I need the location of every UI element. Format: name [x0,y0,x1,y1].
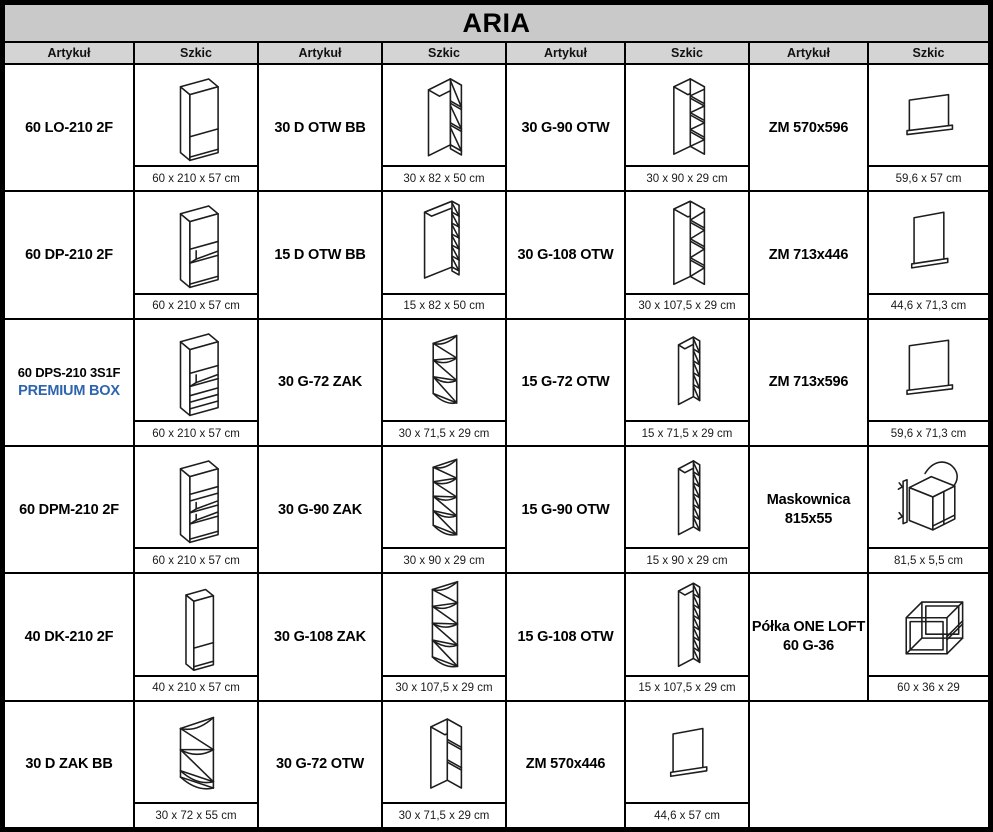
sketch-cell: 15 x 82 x 50 cm [382,191,506,318]
empty-cell [749,701,989,828]
article-cell: 60 DPS-210 3S1FPREMIUM BOX [4,319,134,446]
cabinet-sketch [135,447,257,547]
article-name: 30 G-90 OTW [521,120,609,136]
article-cell: 60 DP-210 2F [4,191,134,318]
sketch-dimensions: 44,6 x 57 cm [626,802,748,827]
article-name: Półka ONE LOFT [752,619,865,635]
wall-open-4-sketch-icon [648,68,726,162]
article-name: 60 DPM-210 2F [19,502,119,518]
column-header-sketch: Szkic [868,42,989,64]
article-name: ZM 570x446 [526,756,605,772]
sketch-dimensions: 81,5 x 5,5 cm [869,547,988,572]
sketch-cell: 30 x 71,5 x 29 cm [382,701,506,828]
sketch-cell: 30 x 90 x 29 cm [625,64,749,191]
article-cell: ZM 713x446 [749,191,868,318]
article-name: Maskownica [767,492,850,508]
sketch-dimensions: 60 x 36 x 29 [869,675,988,700]
tall-2f-narrow-sketch-icon [157,577,235,671]
sketch-dimensions: 15 x 107,5 x 29 cm [626,675,748,700]
article-name: 40 DK-210 2F [25,629,114,645]
page-title: ARIA [4,4,989,42]
article-cell: 30 D OTW BB [258,64,382,191]
article-cell: 30 G-108 OTW [506,191,625,318]
sketch-dimensions: 30 x 71,5 x 29 cm [383,802,505,827]
article-subname: 815x55 [785,511,832,527]
article-name: 30 G-108 ZAK [274,629,366,645]
article-subname: 60 G-36 [783,638,834,654]
wall-narrow-7-sketch-icon [648,577,726,671]
sketch-cell: 30 x 82 x 50 cm [382,64,506,191]
cabinet-sketch [626,320,748,420]
base-open-sketch-icon [405,68,483,162]
article-name: 15 G-90 OTW [521,502,609,518]
cabinet-sketch [383,192,505,292]
column-header-sketch: Szkic [625,42,749,64]
article-cell: 60 DPM-210 2F [4,446,134,573]
corner-base-2-sketch-icon [157,705,235,799]
cabinet-sketch [869,574,988,674]
cabinet-sketch [135,192,257,292]
wall-open-4-tall-sketch-icon [648,195,726,289]
sketch-cell: 59,6 x 57 cm [868,64,989,191]
article-name: 60 DP-210 2F [25,247,113,263]
cabinet-sketch [626,447,748,547]
sketch-cell: 30 x 71,5 x 29 cm [382,319,506,446]
sketch-dimensions: 60 x 210 x 57 cm [135,420,257,445]
cabinet-sketch [383,447,505,547]
article-cell: 40 DK-210 2F [4,573,134,700]
sketch-dimensions: 59,6 x 71,3 cm [869,420,988,445]
article-name: 30 D ZAK BB [25,756,112,772]
article-name: ZM 713x596 [769,374,848,390]
cabinet-sketch [626,192,748,292]
tall-2f-sketch-icon [157,68,235,162]
sketch-dimensions: 30 x 107,5 x 29 cm [626,293,748,318]
loft-shelf-sketch-icon [889,577,967,671]
cabinet-sketch [383,320,505,420]
sketch-cell: 60 x 210 x 57 cm [134,446,258,573]
sketch-dimensions: 60 x 210 x 57 cm [135,165,257,190]
cabinet-sketch [869,320,988,420]
article-cell: 15 G-108 OTW [506,573,625,700]
sketch-dimensions: 30 x 71,5 x 29 cm [383,420,505,445]
wall-narrow-6-sketch-icon [648,450,726,544]
article-cell: 30 G-90 OTW [506,64,625,191]
article-cell: 30 G-108 ZAK [258,573,382,700]
sketch-dimensions: 59,6 x 57 cm [869,165,988,190]
cabinet-sketch [626,65,748,165]
corner-zak-3-sketch-icon [405,323,483,417]
article-cell: ZM 570x596 [749,64,868,191]
sketch-dimensions: 30 x 90 x 29 cm [383,547,505,572]
panel-portrait-small-sketch-icon [648,705,726,799]
article-cell: 30 D ZAK BB [4,701,134,828]
wall-open-3-sketch-icon [405,705,483,799]
cabinet-sketch [135,320,257,420]
sketch-cell: 60 x 210 x 57 cm [134,64,258,191]
sketch-cell: 44,6 x 57 cm [625,701,749,828]
sketch-dimensions: 30 x 107,5 x 29 cm [383,675,505,700]
catalog-table: ARIA Artykuł Szkic Artykuł Szkic Artykuł… [0,0,993,832]
article-name: 30 G-72 OTW [276,756,364,772]
tall-oven-sketch-icon [157,195,235,289]
column-header-article: Artykuł [4,42,134,64]
article-cell: ZM 570x446 [506,701,625,828]
article-premium-label: PREMIUM BOX [18,383,120,399]
cabinet-sketch [135,65,257,165]
article-name: 15 D OTW BB [274,247,365,263]
sketch-cell: 30 x 72 x 55 cm [134,701,258,828]
column-header-sketch: Szkic [134,42,258,64]
cabinet-sketch [869,447,988,547]
corner-zak-4-tall-sketch-icon [405,577,483,671]
base-open-slim-sketch-icon [405,195,483,289]
sketch-dimensions: 60 x 210 x 57 cm [135,293,257,318]
sketch-dimensions: 15 x 71,5 x 29 cm [626,420,748,445]
article-name: 60 LO-210 2F [25,120,113,136]
panel-portrait-sketch-icon [889,195,967,289]
column-header-article: Artykuł [258,42,382,64]
wall-narrow-5-sketch-icon [648,323,726,417]
cabinet-sketch [135,574,257,674]
cabinet-sketch [135,702,257,802]
sketch-dimensions: 40 x 210 x 57 cm [135,675,257,700]
sketch-cell: 40 x 210 x 57 cm [134,573,258,700]
sketch-cell: 30 x 107,5 x 29 cm [382,573,506,700]
article-name: ZM 570x596 [769,120,848,136]
sketch-dimensions: 15 x 82 x 50 cm [383,293,505,318]
article-cell: 15 D OTW BB [258,191,382,318]
sketch-dimensions: 30 x 90 x 29 cm [626,165,748,190]
cabinet-sketch [626,574,748,674]
sketch-cell: 60 x 210 x 57 cm [134,191,258,318]
maskownica-sketch-icon [889,450,967,544]
article-cell: 30 G-90 ZAK [258,446,382,573]
sketch-cell: 60 x 36 x 29 [868,573,989,700]
cabinet-sketch [383,702,505,802]
corner-zak-4-sketch-icon [405,450,483,544]
cabinet-sketch [383,65,505,165]
sketch-cell: 15 x 107,5 x 29 cm [625,573,749,700]
sketch-cell: 59,6 x 71,3 cm [868,319,989,446]
cabinet-sketch [869,65,988,165]
tall-oven-drawers-sketch-icon [157,323,235,417]
column-header-article: Artykuł [749,42,868,64]
article-cell: Półka ONE LOFT60 G-36 [749,573,868,700]
article-cell: ZM 713x596 [749,319,868,446]
sketch-dimensions: 60 x 210 x 57 cm [135,547,257,572]
panel-square-sketch-icon [889,323,967,417]
article-name: 30 G-108 OTW [518,247,614,263]
article-name: 30 G-72 ZAK [278,374,362,390]
tall-micro-sketch-icon [157,450,235,544]
sketch-dimensions: 30 x 72 x 55 cm [135,802,257,827]
cabinet-sketch [869,192,988,292]
article-name: 30 D OTW BB [274,120,365,136]
sketch-cell: 30 x 107,5 x 29 cm [625,191,749,318]
sketch-cell: 81,5 x 5,5 cm [868,446,989,573]
cabinet-sketch [383,574,505,674]
article-name: 30 G-90 ZAK [278,502,362,518]
column-header-article: Artykuł [506,42,625,64]
sketch-dimensions: 15 x 90 x 29 cm [626,547,748,572]
sketch-cell: 15 x 71,5 x 29 cm [625,319,749,446]
sketch-cell: 30 x 90 x 29 cm [382,446,506,573]
sketch-dimensions: 30 x 82 x 50 cm [383,165,505,190]
article-cell: 30 G-72 OTW [258,701,382,828]
sketch-cell: 15 x 90 x 29 cm [625,446,749,573]
article-name: 15 G-108 OTW [518,629,614,645]
article-cell: Maskownica815x55 [749,446,868,573]
article-name: 60 DPS-210 3S1F [18,365,121,380]
article-cell: 60 LO-210 2F [4,64,134,191]
cabinet-sketch [626,702,748,802]
sketch-dimensions: 44,6 x 71,3 cm [869,293,988,318]
article-cell: 15 G-72 OTW [506,319,625,446]
article-cell: 30 G-72 ZAK [258,319,382,446]
article-name: 15 G-72 OTW [521,374,609,390]
article-name: ZM 713x446 [769,247,848,263]
article-cell: 15 G-90 OTW [506,446,625,573]
sketch-cell: 60 x 210 x 57 cm [134,319,258,446]
panel-landscape-sketch-icon [889,68,967,162]
sketch-cell: 44,6 x 71,3 cm [868,191,989,318]
column-header-sketch: Szkic [382,42,506,64]
